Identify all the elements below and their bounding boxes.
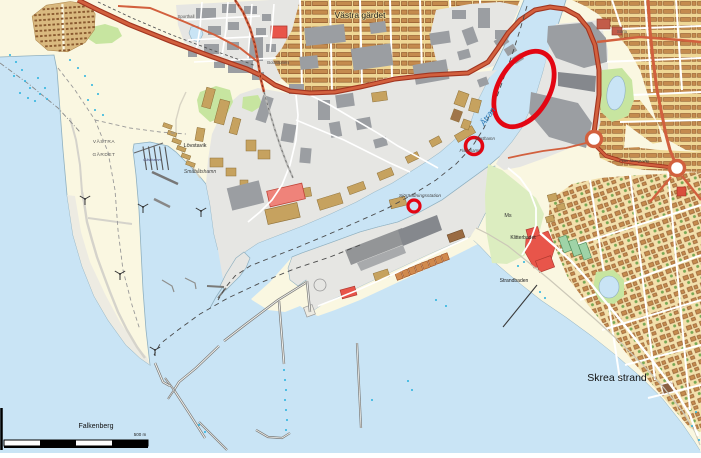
svg-text:Fiskehamn: Fiskehamn [459, 148, 481, 153]
svg-text:Bolastonen: Bolastonen [267, 60, 289, 65]
svg-text:500 m: 500 m [134, 432, 147, 437]
svg-text:Gästhamn: Gästhamn [475, 136, 495, 141]
svg-text:Särla: Särla [617, 29, 628, 34]
svg-text:Skrea strand: Skrea strand [587, 372, 647, 384]
svg-text:Sporthall: Sporthall [178, 14, 195, 19]
svg-text:Peter Åbergs väg: Peter Åbergs väg [619, 158, 648, 163]
svg-text:Sjöräddningsstation: Sjöräddningsstation [399, 193, 441, 199]
svg-text:Lövstavik: Lövstavik [184, 143, 207, 149]
svg-text:Gästhamn: Gästhamn [143, 158, 161, 162]
svg-text:Småbåtshamn: Småbåtshamn [184, 168, 216, 175]
svg-text:Klitterbadet: Klitterbadet [510, 235, 536, 241]
svg-text:Falkenberg: Falkenberg [78, 423, 113, 430]
svg-text:Ms: Ms [504, 213, 512, 219]
svg-text:Västra gärdet: Västra gärdet [334, 10, 386, 20]
svg-text:VÄSTRA: VÄSTRA [93, 138, 115, 145]
svg-text:GÄRDET: GÄRDET [93, 151, 116, 158]
svg-text:Strandbaden: Strandbaden [500, 278, 529, 284]
